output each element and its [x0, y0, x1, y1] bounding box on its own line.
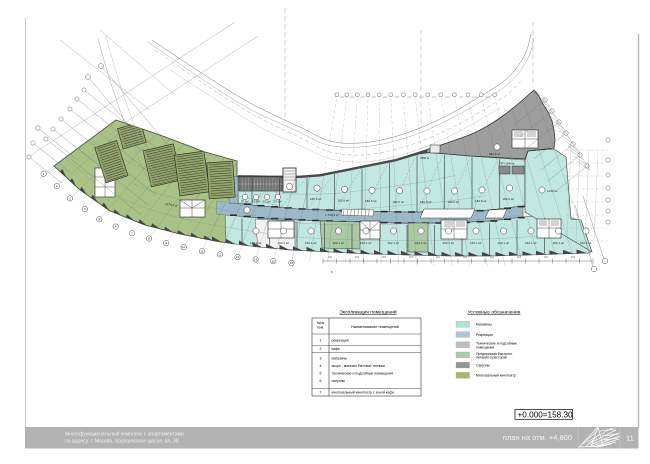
svg-text:6,0: 6,0: [409, 255, 413, 259]
svg-text:Многофункциональный комплекс с: Многофункциональный комплекс с апартамен…: [65, 431, 184, 438]
svg-text:162.1 м²: 162.1 м²: [278, 241, 289, 245]
svg-text:Условные обозначения: Условные обозначения: [468, 310, 521, 316]
svg-text:6: 6: [320, 379, 322, 383]
svg-text:162.1 м²: 162.1 м²: [498, 241, 509, 245]
svg-text:план на отм. +4,800: план на отм. +4,800: [503, 433, 572, 442]
svg-text:Многозальный кинотеатр: Многозальный кинотеатр: [476, 374, 516, 378]
svg-text:кафе: кафе: [332, 347, 340, 351]
svg-text:магазины: магазины: [332, 357, 348, 361]
svg-text:№№: №№: [317, 321, 325, 325]
svg-text:13: 13: [236, 255, 240, 259]
svg-text:1 709.4 м²: 1 709.4 м²: [325, 213, 339, 217]
svg-text:37.1м²: 37.1м²: [274, 200, 282, 204]
svg-text:4: 4: [320, 364, 322, 368]
svg-text:помещения: помещения: [476, 345, 494, 349]
svg-text:11: 11: [626, 434, 634, 443]
svg-text:ТРП 1644 м: ТРП 1644 м: [499, 162, 514, 166]
svg-text:6,0: 6,0: [328, 255, 332, 259]
svg-text:162.1 м²: 162.1 м²: [415, 241, 426, 245]
svg-text:6,0: 6,0: [436, 255, 440, 259]
svg-text:182.6 м²: 182.6 м²: [420, 200, 431, 204]
svg-text:6,0: 6,0: [517, 255, 521, 259]
svg-text:11: 11: [200, 249, 203, 253]
svg-text:6,0: 6,0: [382, 255, 386, 259]
svg-text:162.1 м²: 162.1 м²: [250, 241, 261, 245]
svg-text:162.1 м²: 162.1 м²: [443, 241, 454, 245]
svg-text:6,0: 6,0: [571, 255, 575, 259]
svg-text:3: 3: [320, 357, 322, 361]
svg-text:2: 2: [320, 347, 322, 351]
svg-text:162.1 м²: 162.1 м²: [553, 241, 564, 245]
svg-text:пом.: пом.: [317, 326, 324, 330]
svg-text:182.6 м²: 182.6 м²: [393, 200, 404, 204]
svg-text:Магазины: Магазины: [476, 323, 492, 327]
svg-text:182.6 м²: 182.6 м²: [448, 200, 459, 204]
svg-text:1140 м²: 1140 м²: [547, 189, 557, 193]
svg-text:,6: ,6: [330, 270, 333, 274]
svg-text:+0.000=158.30: +0.000=158.30: [518, 410, 574, 419]
svg-text:6,0: 6,0: [355, 255, 359, 259]
svg-text:182.6 м²: 182.6 м²: [475, 199, 486, 203]
svg-text:162.1 м²: 162.1 м²: [470, 241, 481, 245]
svg-text:рекреация: рекреация: [332, 339, 349, 343]
svg-text:10: 10: [182, 245, 186, 249]
svg-text:1: 1: [320, 339, 322, 343]
svg-text:182.6 м²: 182.6 м²: [503, 197, 514, 201]
svg-text:37.1м²: 37.1м²: [263, 200, 271, 204]
svg-text:6,0: 6,0: [544, 255, 548, 259]
svg-text:182.6 м²: 182.6 м²: [365, 199, 376, 203]
svg-text:182.6 м²: 182.6 м²: [310, 197, 321, 201]
svg-text:12: 12: [218, 253, 222, 257]
svg-text:162.1 м²: 162.1 м²: [525, 241, 536, 245]
svg-text:16: 16: [290, 261, 294, 265]
svg-text:5: 5: [320, 372, 322, 376]
svg-text:санузлы: санузлы: [332, 379, 346, 383]
svg-text:37.1м²: 37.1м²: [241, 200, 249, 204]
svg-text:162.1 м²: 162.1 м²: [360, 241, 371, 245]
svg-text:14: 14: [254, 258, 258, 262]
svg-text:37.1м²: 37.1м²: [252, 200, 260, 204]
svg-text:технические и подсобные помеще: технические и подсобные помещения: [332, 372, 394, 376]
svg-text:Экспликация помещений: Экспликация помещений: [339, 309, 396, 316]
svg-text:162.1 м²: 162.1 м²: [305, 241, 316, 245]
svg-text:питания и ресторан: питания и ресторан: [476, 356, 507, 360]
svg-text:2855 м: 2855 м: [420, 156, 429, 160]
svg-text:162.1 м²: 162.1 м²: [333, 241, 344, 245]
svg-text:Санузлы: Санузлы: [476, 364, 490, 368]
svg-text:Рекреация: Рекреация: [476, 333, 493, 337]
svg-text:15: 15: [272, 259, 276, 263]
svg-text:6,0: 6,0: [463, 255, 467, 259]
svg-text:7: 7: [320, 391, 322, 395]
svg-text:по адресу: г. Москва, Хорошевс: по адресу: г. Москва, Хорошевское шоссе,…: [65, 439, 180, 445]
svg-text:6,0: 6,0: [490, 255, 494, 259]
svg-text:якорь - магазин бытовой техник: якорь - магазин бытовой техники: [332, 364, 386, 368]
svg-text:многозальный кинотеатр с зоной: многозальный кинотеатр с зоной кафе: [332, 391, 395, 395]
svg-text:Наименование помещений: Наименование помещений: [351, 325, 399, 329]
svg-text:162.1 м²: 162.1 м²: [388, 241, 399, 245]
svg-text:582.6 м²: 582.6 м²: [489, 152, 500, 156]
svg-text:182.6 м²: 182.6 м²: [338, 198, 349, 202]
